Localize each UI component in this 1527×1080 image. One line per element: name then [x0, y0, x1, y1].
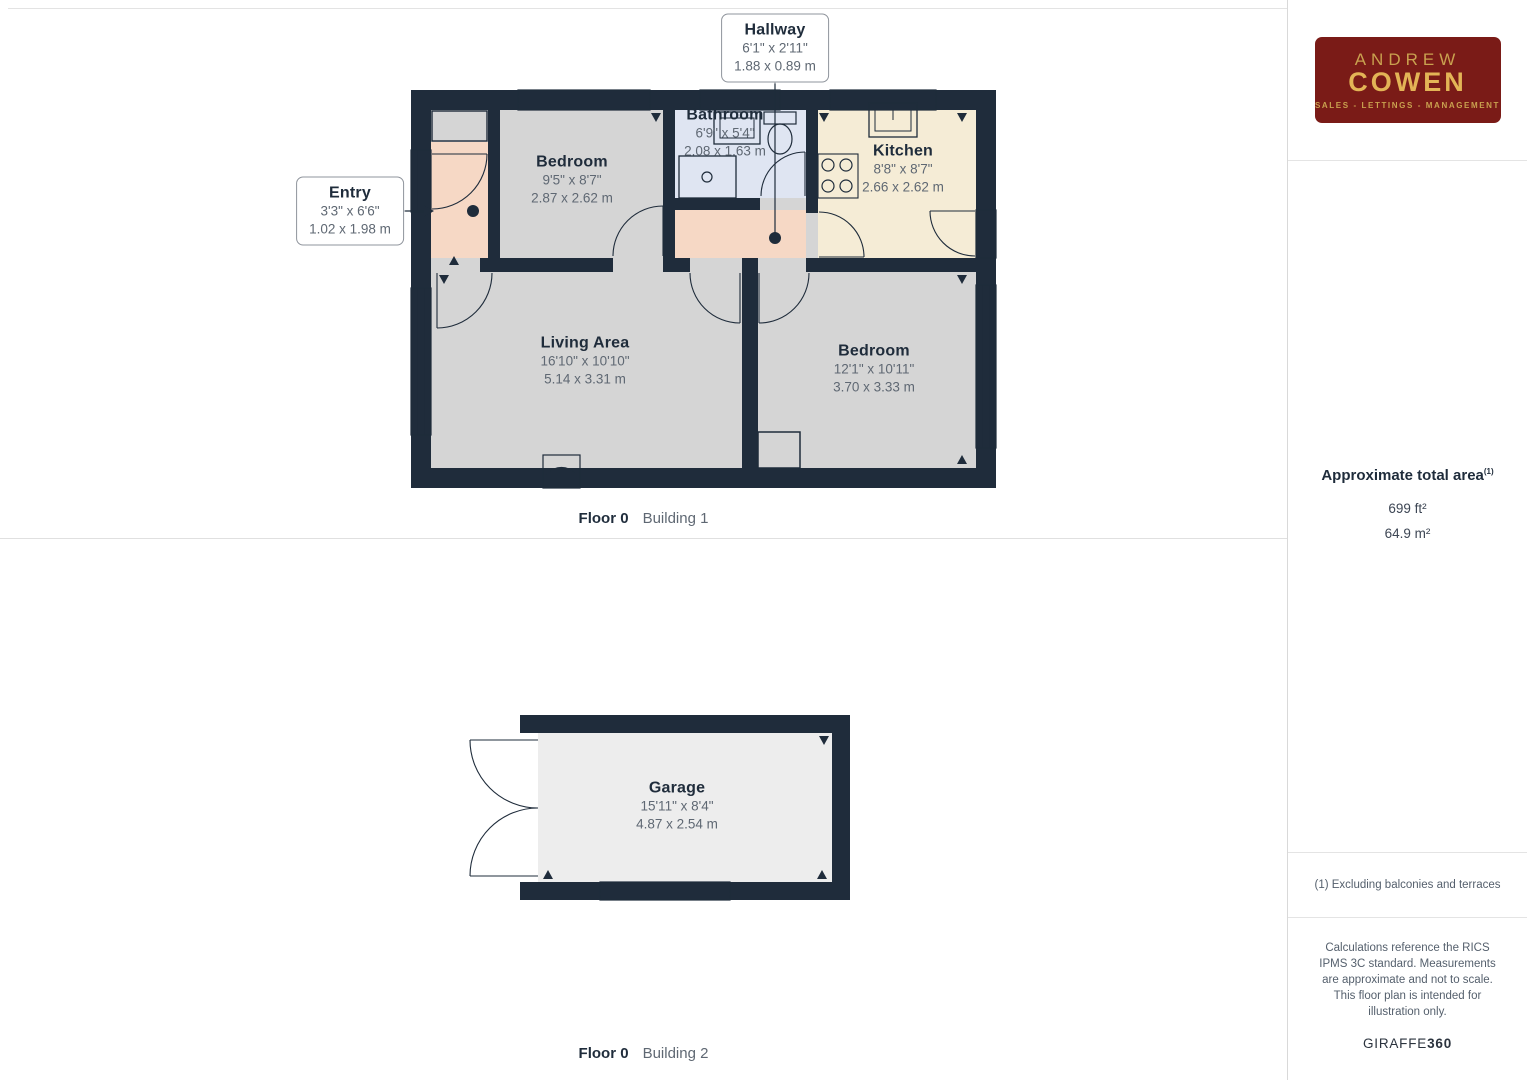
- footnote-text: (1) Excluding balconies and terraces: [1314, 879, 1500, 891]
- plan-caption-building-1: Floor 0Building 1: [0, 510, 1287, 528]
- total-area-imperial: 699 ft²: [1321, 496, 1493, 521]
- room-label-living-area: Living Area 16'10" x 10'10" 5.14 x 3.31 …: [540, 334, 629, 389]
- brand-suffix: 360: [1427, 1036, 1452, 1051]
- room-name: Entry: [309, 184, 391, 203]
- brand-name: GIRAFFE: [1363, 1036, 1427, 1051]
- room-size-metric: 3.70 x 3.33 m: [833, 379, 915, 397]
- floorplan-page: Hallway 6'1" x 2'11" 1.88 x 0.89 m Entry…: [0, 0, 1527, 1080]
- total-area-title: Approximate total area(1): [1321, 467, 1493, 484]
- footnote-region: (1) Excluding balconies and terraces: [1288, 852, 1527, 917]
- room-size-metric: 4.87 x 2.54 m: [636, 816, 718, 834]
- room-name: Living Area: [540, 334, 629, 353]
- caption-floor: Floor 0: [579, 1045, 629, 1062]
- logo-region: ANDREW COWEN SALES - LETTINGS - MANAGEME…: [1288, 0, 1527, 160]
- room-name: Bathroom: [684, 106, 766, 125]
- room-size-metric: 2.66 x 2.62 m: [862, 179, 944, 197]
- room-size-metric: 2.87 x 2.62 m: [531, 190, 613, 208]
- total-area-region: Approximate total area(1) 699 ft² 64.9 m…: [1288, 160, 1527, 852]
- room-size-imperial: 3'3" x 6'6": [309, 203, 391, 221]
- room-size-imperial: 16'10" x 10'10": [540, 353, 629, 371]
- hallway-room-area: [675, 210, 806, 258]
- room-label-hallway: Hallway 6'1" x 2'11" 1.88 x 0.89 m: [721, 14, 829, 83]
- room-name: Hallway: [734, 21, 816, 40]
- room-size-imperial: 6'1" x 2'11": [734, 40, 816, 58]
- agency-name-bottom: COWEN: [1348, 67, 1467, 98]
- room-size-imperial: 6'9" x 5'4": [684, 125, 766, 143]
- room-size-imperial: 9'5" x 8'7": [531, 172, 613, 190]
- caption-building: Building 1: [643, 510, 709, 527]
- room-size-imperial: 15'11" x 8'4": [636, 798, 718, 816]
- room-name: Bedroom: [531, 153, 613, 172]
- footnote-reference: (1): [1484, 467, 1494, 476]
- room-label-garage: Garage 15'11" x 8'4" 4.87 x 2.54 m: [636, 779, 718, 834]
- bedroom-closet: [758, 432, 800, 468]
- disclaimer-region: Calculations reference the RICS IPMS 3C …: [1288, 917, 1527, 1080]
- info-sidebar: ANDREW COWEN SALES - LETTINGS - MANAGEME…: [1287, 0, 1527, 1080]
- room-label-kitchen: Kitchen 8'8" x 8'7" 2.66 x 2.62 m: [862, 142, 944, 197]
- room-size-metric: 1.02 x 1.98 m: [309, 221, 391, 239]
- total-area-metric: 64.9 m²: [1321, 521, 1493, 546]
- agency-logo: ANDREW COWEN SALES - LETTINGS - MANAGEME…: [1315, 37, 1501, 123]
- room-name: Bedroom: [833, 342, 915, 361]
- room-label-bathroom: Bathroom 6'9" x 5'4" 2.08 x 1.63 m: [684, 106, 766, 161]
- room-name: Kitchen: [862, 142, 944, 161]
- entry-door-dot: [467, 205, 479, 217]
- caption-floor: Floor 0: [579, 510, 629, 527]
- room-label-entry: Entry 3'3" x 6'6" 1.02 x 1.98 m: [296, 177, 404, 246]
- entry-room-area: [431, 142, 488, 258]
- caption-building: Building 2: [643, 1045, 709, 1062]
- room-size-imperial: 12'1" x 10'11": [833, 361, 915, 379]
- room-size-metric: 5.14 x 3.31 m: [540, 371, 629, 389]
- floorplan-drawing: [0, 0, 1287, 1080]
- room-name: Garage: [636, 779, 718, 798]
- room-size-imperial: 8'8" x 8'7": [862, 161, 944, 179]
- hallway-leader-dot: [769, 232, 781, 244]
- giraffe360-brand: GIRAFFE360: [1363, 1036, 1452, 1051]
- floorplan-canvas: Hallway 6'1" x 2'11" 1.88 x 0.89 m Entry…: [0, 0, 1287, 1080]
- room-size-metric: 1.88 x 0.89 m: [734, 58, 816, 76]
- room-size-metric: 2.08 x 1.63 m: [684, 143, 766, 161]
- total-area-block: Approximate total area(1) 699 ft² 64.9 m…: [1321, 467, 1493, 546]
- room-label-bedroom-2: Bedroom 12'1" x 10'11" 3.70 x 3.33 m: [833, 342, 915, 397]
- disclaimer-text: Calculations reference the RICS IPMS 3C …: [1315, 940, 1501, 1020]
- room-label-bedroom-1: Bedroom 9'5" x 8'7" 2.87 x 2.62 m: [531, 153, 613, 208]
- plan-caption-building-2: Floor 0Building 2: [0, 1045, 1287, 1063]
- total-area-title-text: Approximate total area: [1321, 467, 1484, 484]
- agency-tagline: SALES - LETTINGS - MANAGEMENT: [1315, 101, 1500, 110]
